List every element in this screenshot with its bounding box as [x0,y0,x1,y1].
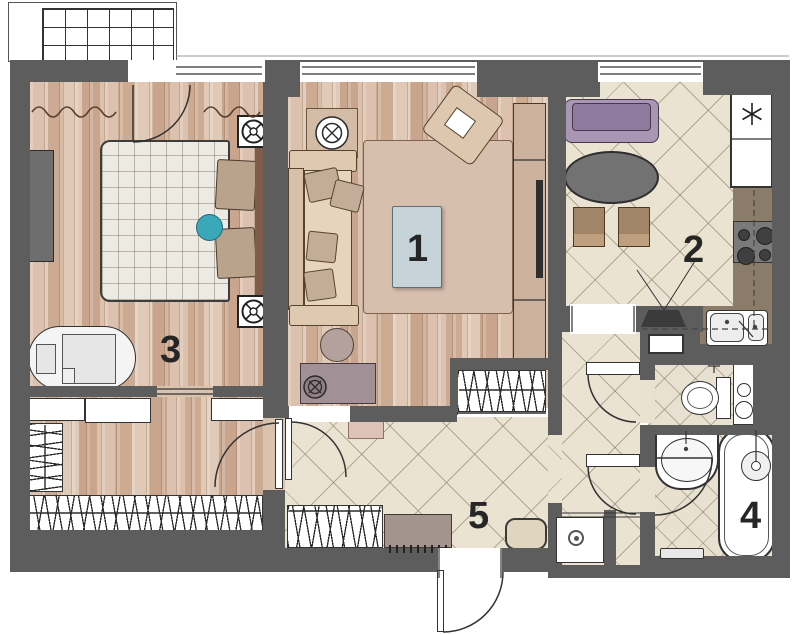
bedroom-closet-divider [213,386,265,397]
room-label-kitchen: 2 [683,229,704,272]
dining-table [564,151,659,204]
bedroom-closet-divider [27,386,157,397]
left-wall [10,60,30,572]
kitchen-wall-tv [641,310,686,327]
closet-shelf [211,398,267,421]
balcony-glazing-grid [42,8,174,62]
kitchen-sink-bowl [748,314,764,341]
shower-head-center [751,461,761,471]
top-pier [477,60,600,97]
kitchen-sink-bowl [710,313,744,342]
hallway-closet [287,505,383,548]
kitchen-doorway [570,304,636,334]
entry-door-opening [438,548,502,572]
closet-shelf [26,398,85,421]
bathroom-doorway [640,467,655,512]
teal-cushion [196,214,223,241]
bathroom-bottom-wall [640,556,790,578]
living-door-opening [289,406,350,422]
corridor-left-wall [548,330,562,435]
wc-pipe [737,383,751,397]
coat-closet [457,370,546,412]
floor-lamp [311,112,353,159]
room-label-living: 1 [407,228,428,271]
washing-machine-dot [574,536,579,541]
vent-niche [648,334,684,354]
bed-pillow [215,227,258,279]
washer-bottom-wall [548,565,640,578]
living-kitchen-wall [548,95,566,310]
kitchen-window [598,62,703,82]
bedroom-closet-opening [157,386,213,397]
corridor-right-stub [640,435,655,467]
doormat [348,419,384,439]
desk-chair [320,328,354,362]
wc-pipe [735,401,753,419]
right-wall [772,60,790,578]
sofa-armrest [289,305,359,326]
pouf [505,518,547,550]
stove-burner [737,247,755,265]
living-tv [536,180,543,278]
stove-burner [759,249,771,261]
toilet-bowl-inner [687,387,713,409]
sofa-back [288,168,304,310]
crib-blanket [62,368,75,384]
room-label-bathroom: 4 [740,495,761,538]
bed-pillow [215,159,258,211]
closet-door-leaf [275,419,283,489]
entry-door-arc [443,572,503,632]
crib-pillow [36,344,56,374]
hallway-corridor-opening [548,435,562,503]
coat-closet-wall-left [450,358,458,415]
bottom-left-wall [10,530,285,572]
closet-hanging-rail-left [27,423,63,492]
coat-closet-wall-top [450,358,548,370]
wc-doorway [640,380,655,423]
entry-door-leaf[interactable] [437,570,444,632]
wc-right-wall [753,358,773,428]
shoe-cabinet [384,514,452,548]
closet-shelf [85,398,151,423]
living-window [300,62,477,82]
snowflake-glyph [739,101,765,127]
living-bottom-wall [350,406,457,422]
room-label-bedroom: 3 [160,329,181,372]
dining-sofa-seat [572,103,651,131]
corridor-door-frame [586,362,640,375]
sofa-pillow [306,231,339,264]
corridor-right-stub [640,365,655,380]
sofa-pillow [303,268,337,302]
living-door-leaf [285,418,292,480]
desk-lamp-glyph [302,374,328,400]
room-label-hallway: 5 [468,495,489,538]
corridor-door-frame [586,454,640,467]
dining-chair [573,207,605,247]
floor-plan: 1 2 3 4 5 [0,0,800,635]
bench [660,548,704,559]
closet-hall-wall [263,488,285,550]
stove-burner [738,229,750,241]
fridge-snowflake-icon [739,101,765,132]
desk-lamp [302,374,328,405]
floor-lamp-glyph [311,112,353,154]
balcony-door-window-band [128,60,265,82]
washer-divider-wall [604,510,616,572]
bedroom-living-wall [263,82,288,420]
closet-hanging-rail-bottom [27,495,263,531]
bathroom-sink-basin [661,438,713,482]
dining-chair [618,207,650,247]
